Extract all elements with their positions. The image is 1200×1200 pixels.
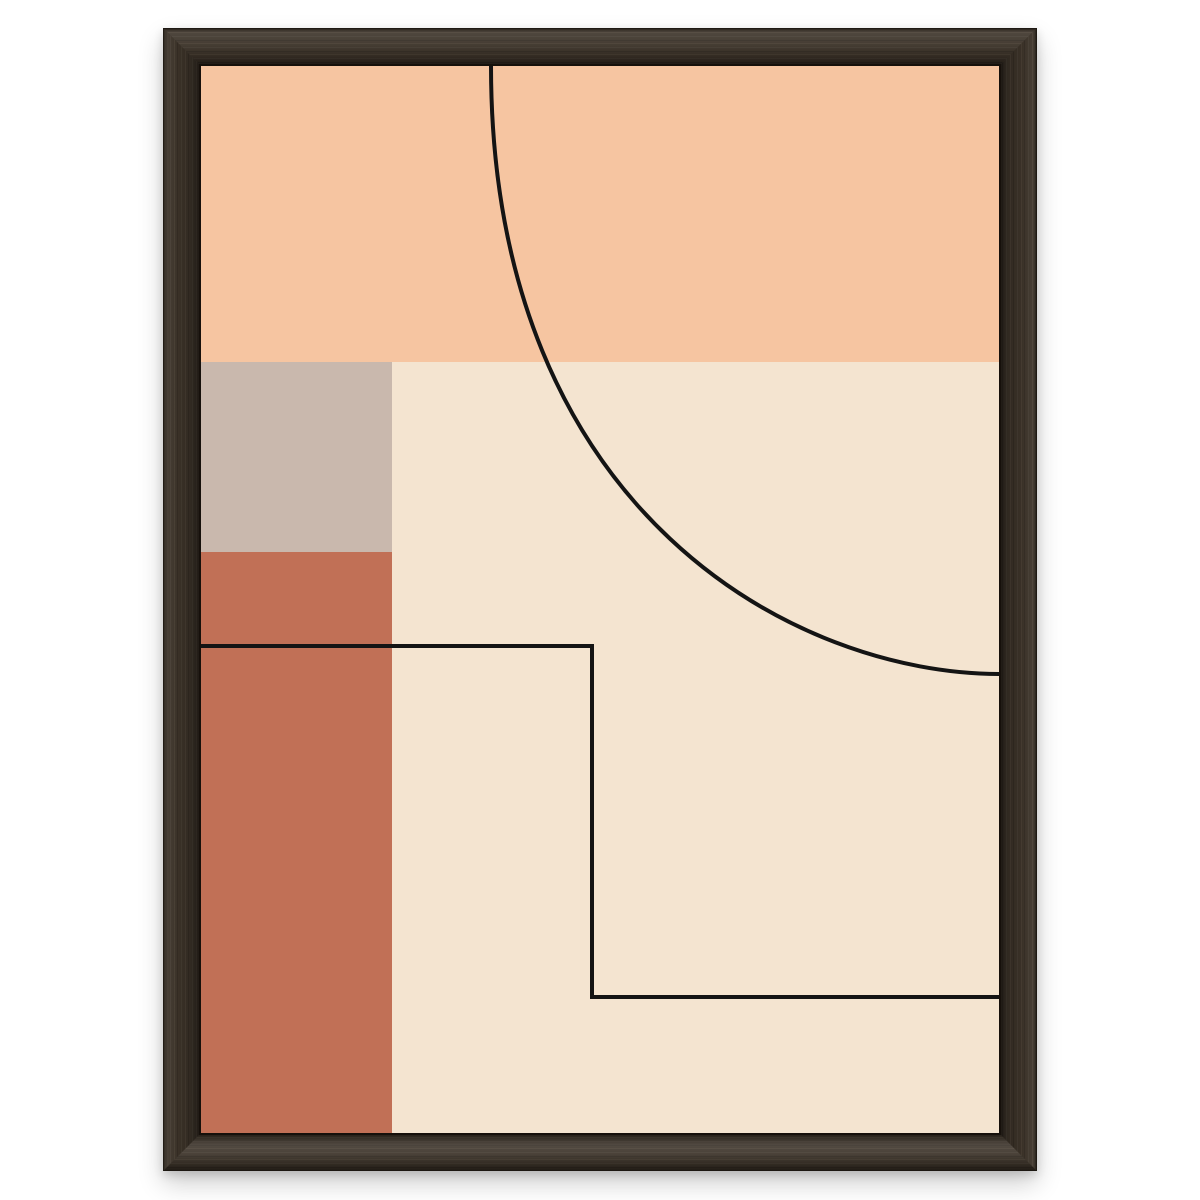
frame-wood-left [163, 28, 201, 1171]
frame-bevel-left [163, 28, 201, 1171]
frame-wood-right [999, 28, 1037, 1171]
frame-wood-top [163, 28, 1037, 66]
frame-bevel-right [999, 28, 1037, 1171]
peach-band [201, 66, 999, 362]
picture-frame [163, 28, 1037, 1171]
art-canvas [201, 66, 999, 1133]
greige-square [201, 362, 392, 552]
frame-wood-bottom [163, 1133, 1037, 1171]
white-backdrop [0, 0, 1200, 1200]
art-svg [201, 66, 999, 1133]
frame-bevel-bottom [163, 1133, 1037, 1171]
terracotta-column [201, 552, 392, 1133]
frame-bevel-top [163, 28, 1037, 66]
